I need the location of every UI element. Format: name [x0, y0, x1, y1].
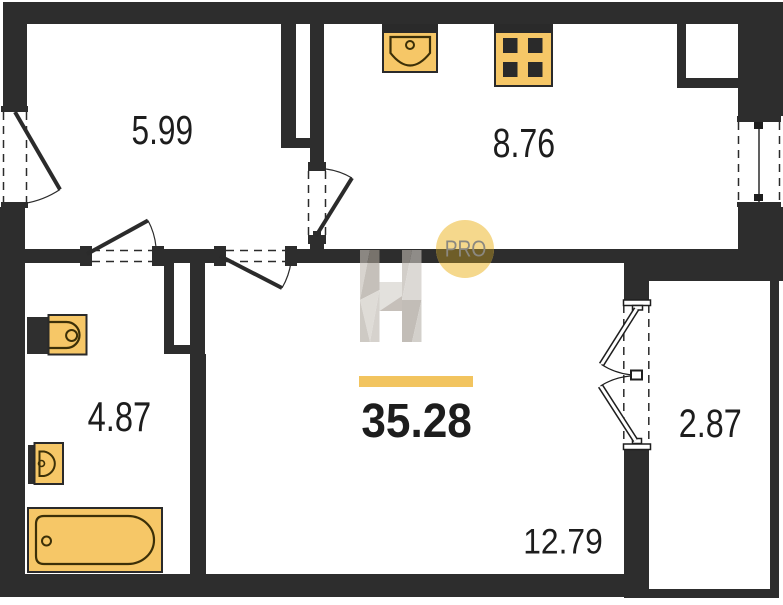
svg-text:35.28: 35.28 [361, 395, 472, 448]
svg-text:4.87: 4.87 [88, 393, 152, 440]
svg-text:2.87: 2.87 [679, 402, 742, 446]
svg-text:5.99: 5.99 [132, 107, 194, 153]
svg-text:12.79: 12.79 [523, 523, 603, 562]
svg-text:PRO: PRO [445, 236, 487, 262]
svg-text:8.76: 8.76 [493, 120, 556, 166]
